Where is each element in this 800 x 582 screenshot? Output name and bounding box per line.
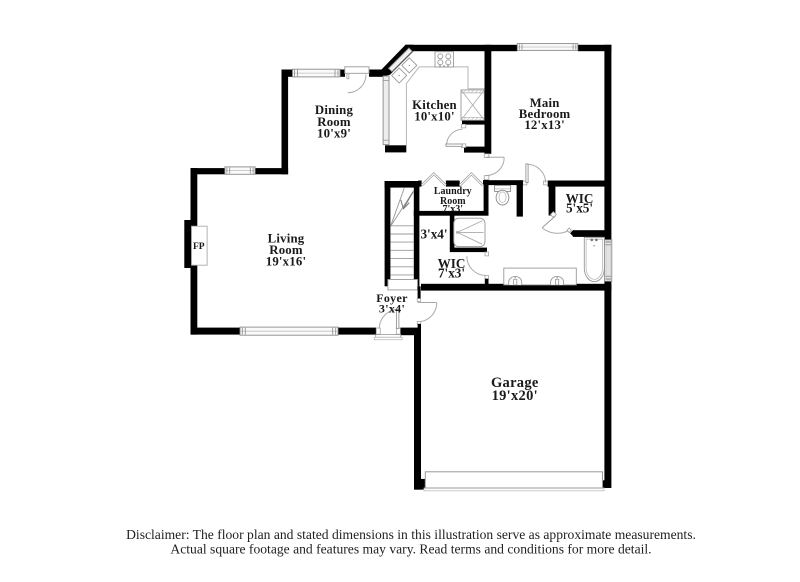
svg-text:5'x5': 5'x5'	[566, 201, 593, 216]
svg-text:3'x4': 3'x4'	[379, 302, 405, 316]
svg-text:Actual square footage and feat: Actual square footage and features may v…	[170, 541, 651, 556]
svg-text:10'x9': 10'x9'	[317, 126, 351, 140]
svg-text:7'x3': 7'x3'	[443, 204, 464, 215]
svg-text:3'x4': 3'x4'	[420, 227, 447, 242]
svg-text:FP: FP	[193, 242, 205, 252]
svg-text:7'x3': 7'x3'	[438, 266, 465, 281]
svg-text:12'x13': 12'x13'	[524, 118, 565, 132]
svg-text:Disclaimer: The floor plan and: Disclaimer: The floor plan and stated di…	[126, 527, 696, 542]
svg-text:19'x20': 19'x20'	[492, 388, 538, 404]
svg-text:10'x10': 10'x10'	[414, 110, 455, 124]
svg-text:19'x16': 19'x16'	[266, 254, 307, 268]
